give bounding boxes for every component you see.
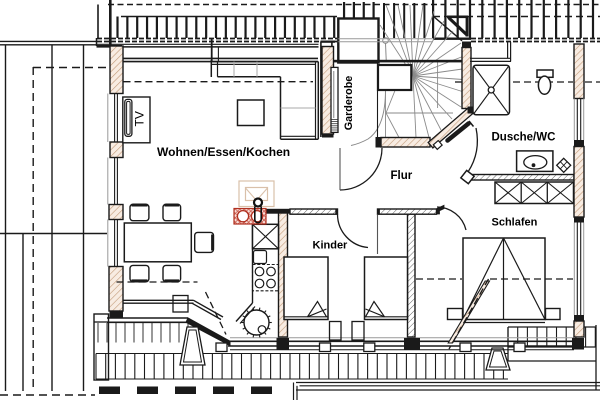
svg-text:TV: TV	[133, 111, 147, 126]
svg-text:Flur: Flur	[391, 170, 413, 182]
svg-text:Garderobe: Garderobe	[343, 76, 355, 131]
svg-text:Schlafen: Schlafen	[492, 217, 538, 229]
svg-text:Wohnen/Essen/Kochen: Wohnen/Essen/Kochen	[157, 145, 290, 159]
svg-text:Kinder: Kinder	[313, 240, 349, 252]
svg-text:Dusche/WC: Dusche/WC	[492, 132, 556, 144]
